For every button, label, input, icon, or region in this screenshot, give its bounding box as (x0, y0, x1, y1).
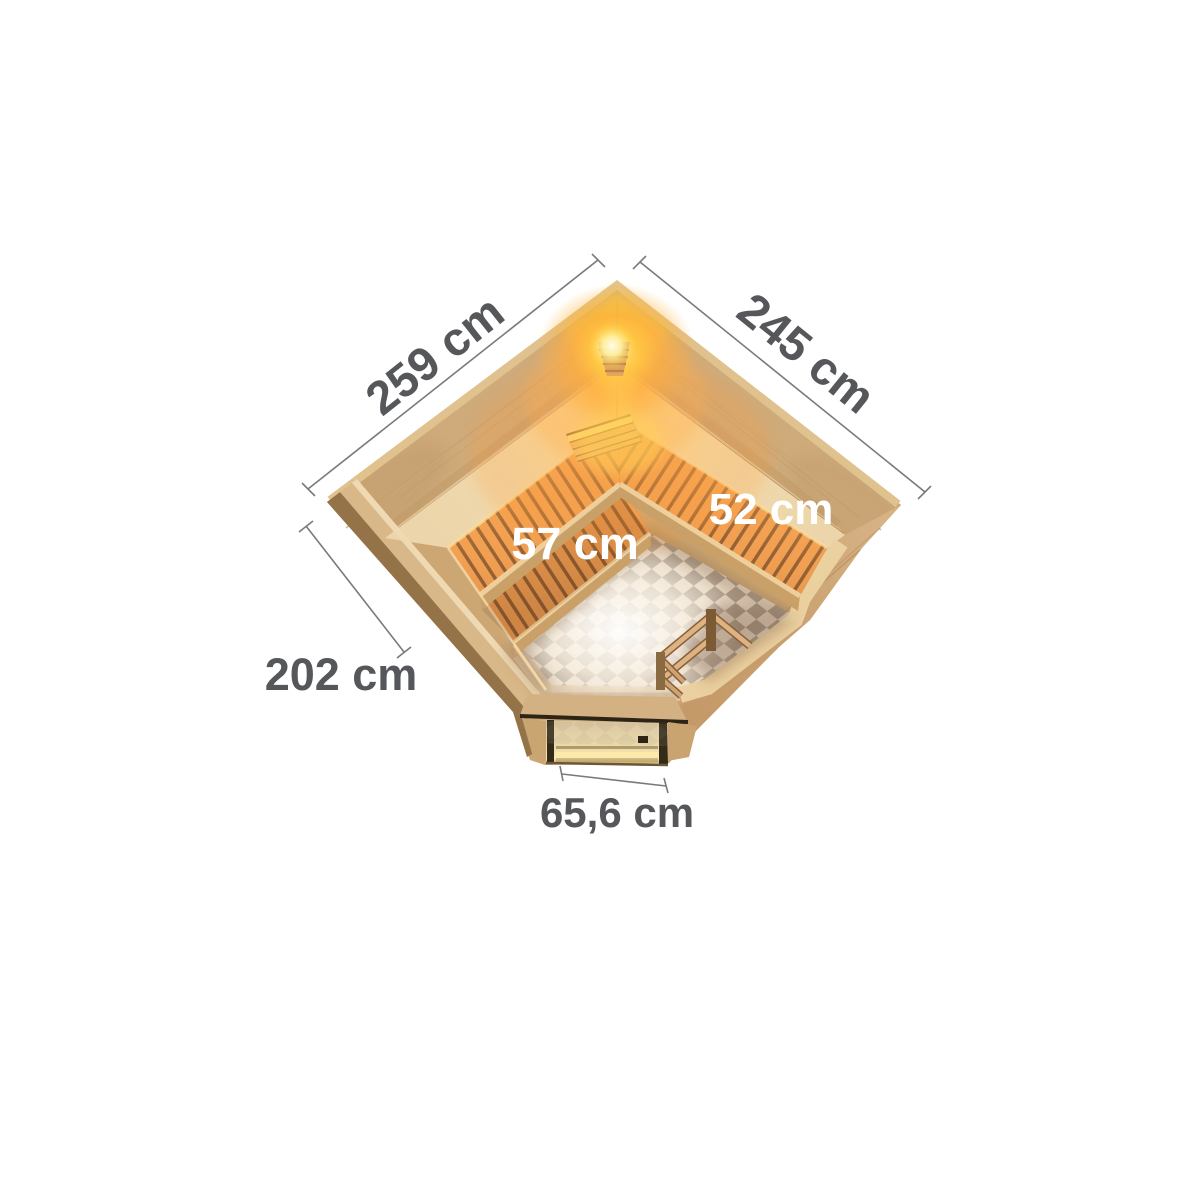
svg-text:202 cm: 202 cm (265, 649, 418, 700)
svg-text:57 cm: 57 cm (511, 518, 639, 569)
svg-text:65,6 cm: 65,6 cm (540, 789, 694, 836)
svg-text:52 cm: 52 cm (709, 485, 834, 534)
